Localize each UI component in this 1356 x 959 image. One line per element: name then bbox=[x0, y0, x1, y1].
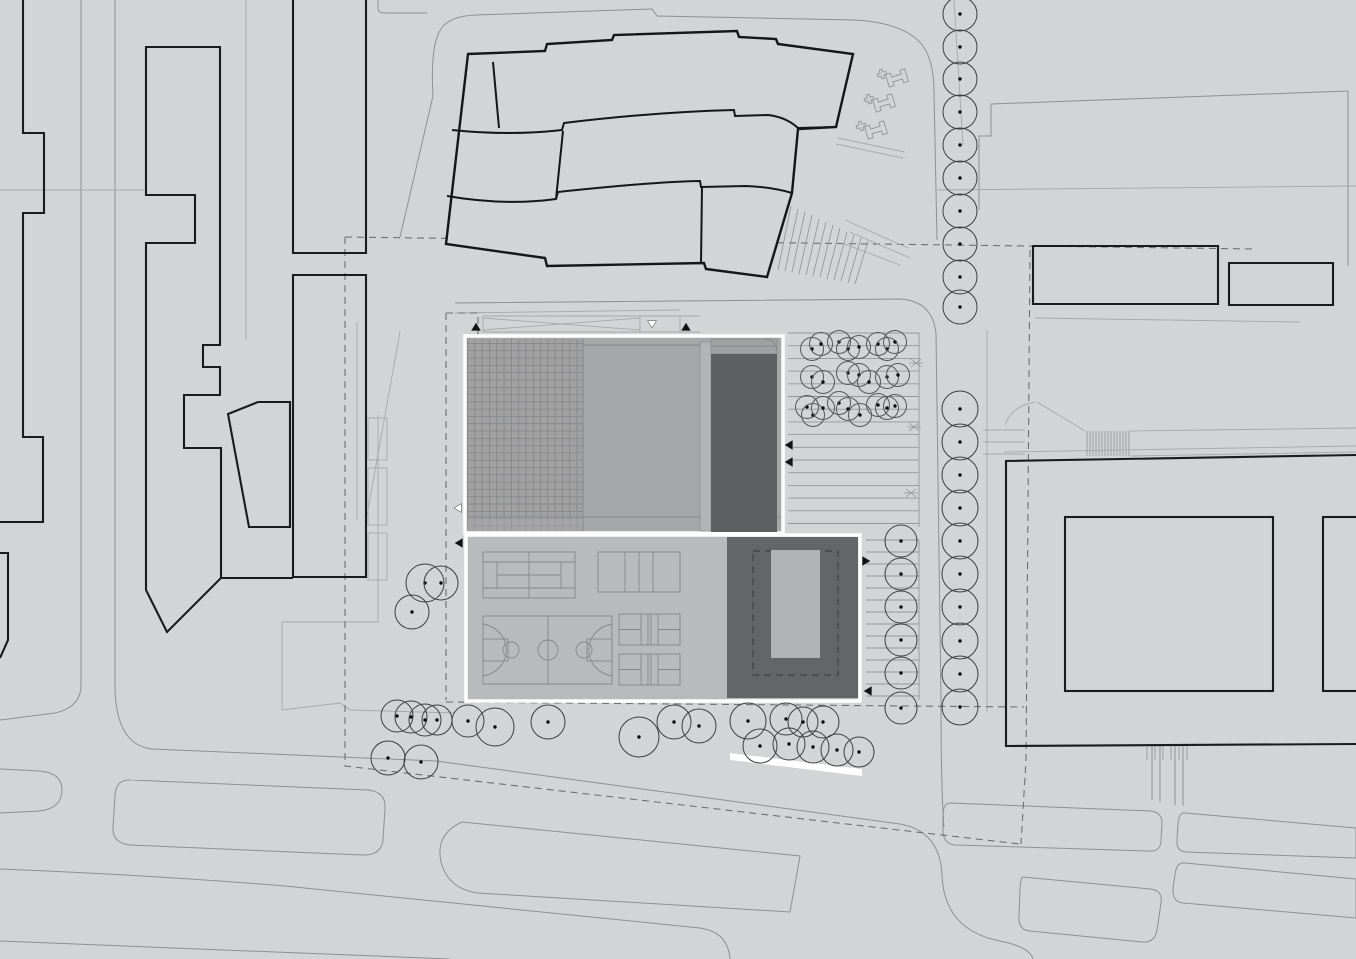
tree-trunk-dot bbox=[746, 719, 749, 722]
tree-trunk-dot bbox=[637, 735, 640, 738]
tree-trunk-dot bbox=[958, 77, 961, 80]
tree-trunk-dot bbox=[419, 760, 422, 763]
tree-trunk-dot bbox=[697, 724, 700, 727]
upper-schoolyard-panel bbox=[465, 336, 783, 533]
tree-trunk-dot bbox=[958, 473, 961, 476]
tree-trunk-dot bbox=[899, 638, 902, 641]
tree-trunk-dot bbox=[410, 610, 413, 613]
tree-trunk-dot bbox=[899, 539, 902, 542]
tree-trunk-dot bbox=[958, 242, 961, 245]
tree-trunk-dot bbox=[885, 406, 888, 409]
tree-trunk-dot bbox=[899, 671, 902, 674]
tree-trunk-dot bbox=[811, 745, 814, 748]
tree-trunk-dot bbox=[435, 718, 438, 721]
tree-trunk-dot bbox=[819, 342, 822, 345]
tree-trunk-dot bbox=[423, 718, 426, 721]
tree-trunk-dot bbox=[821, 720, 824, 723]
tree-trunk-dot bbox=[493, 725, 496, 728]
tree-trunk-dot bbox=[958, 110, 961, 113]
tree-trunk-dot bbox=[958, 705, 961, 708]
tree-trunk-dot bbox=[784, 717, 787, 720]
tree-trunk-dot bbox=[857, 750, 860, 753]
tree-trunk-dot bbox=[758, 744, 761, 747]
tree-trunk-dot bbox=[958, 305, 961, 308]
tree-trunk-dot bbox=[867, 380, 870, 383]
tree-trunk-dot bbox=[958, 605, 961, 608]
tree-trunk-dot bbox=[958, 539, 961, 542]
tree-trunk-dot bbox=[899, 572, 902, 575]
tree-trunk-dot bbox=[958, 639, 961, 642]
tree-trunk-dot bbox=[958, 176, 961, 179]
tree-trunk-dot bbox=[546, 720, 549, 723]
corridor-strip bbox=[700, 342, 711, 531]
tree-trunk-dot bbox=[787, 742, 790, 745]
tree-trunk-dot bbox=[801, 720, 804, 723]
sports-courts-panel bbox=[466, 535, 860, 701]
tree-trunk-dot bbox=[395, 714, 398, 717]
entry-strip bbox=[711, 339, 777, 354]
tree-trunk-dot bbox=[958, 12, 961, 15]
tree-trunk-dot bbox=[958, 572, 961, 575]
tree-trunk-dot bbox=[893, 340, 896, 343]
tree-trunk-dot bbox=[958, 45, 961, 48]
tree-trunk-dot bbox=[466, 719, 469, 722]
tree-trunk-dot bbox=[893, 404, 896, 407]
tree-trunk-dot bbox=[899, 605, 902, 608]
tree-trunk-dot bbox=[958, 407, 961, 410]
tree-trunk-dot bbox=[835, 748, 838, 751]
tree-trunk-dot bbox=[857, 345, 860, 348]
tree-trunk-dot bbox=[958, 275, 961, 278]
tree-trunk-dot bbox=[821, 380, 824, 383]
tree-trunk-dot bbox=[958, 672, 961, 675]
tree-trunk-dot bbox=[386, 756, 389, 759]
tree-trunk-dot bbox=[821, 406, 824, 409]
tree-trunk-dot bbox=[958, 143, 961, 146]
paver-grid-light-row bbox=[467, 518, 583, 531]
site-plan-drawing bbox=[0, 0, 1356, 959]
tree-trunk-dot bbox=[439, 581, 442, 584]
hall-skylight bbox=[771, 550, 820, 658]
tree-trunk-dot bbox=[958, 440, 961, 443]
paver-grid bbox=[467, 339, 583, 531]
tree-trunk-dot bbox=[958, 209, 961, 212]
tree-trunk-dot bbox=[896, 373, 899, 376]
tree-trunk-dot bbox=[858, 413, 861, 416]
site-plan-canvas bbox=[0, 0, 1356, 959]
tree-trunk-dot bbox=[672, 720, 675, 723]
gym-building-dark-upper bbox=[711, 354, 777, 532]
tree-trunk-dot bbox=[899, 706, 902, 709]
tree-trunk-dot bbox=[958, 506, 961, 509]
